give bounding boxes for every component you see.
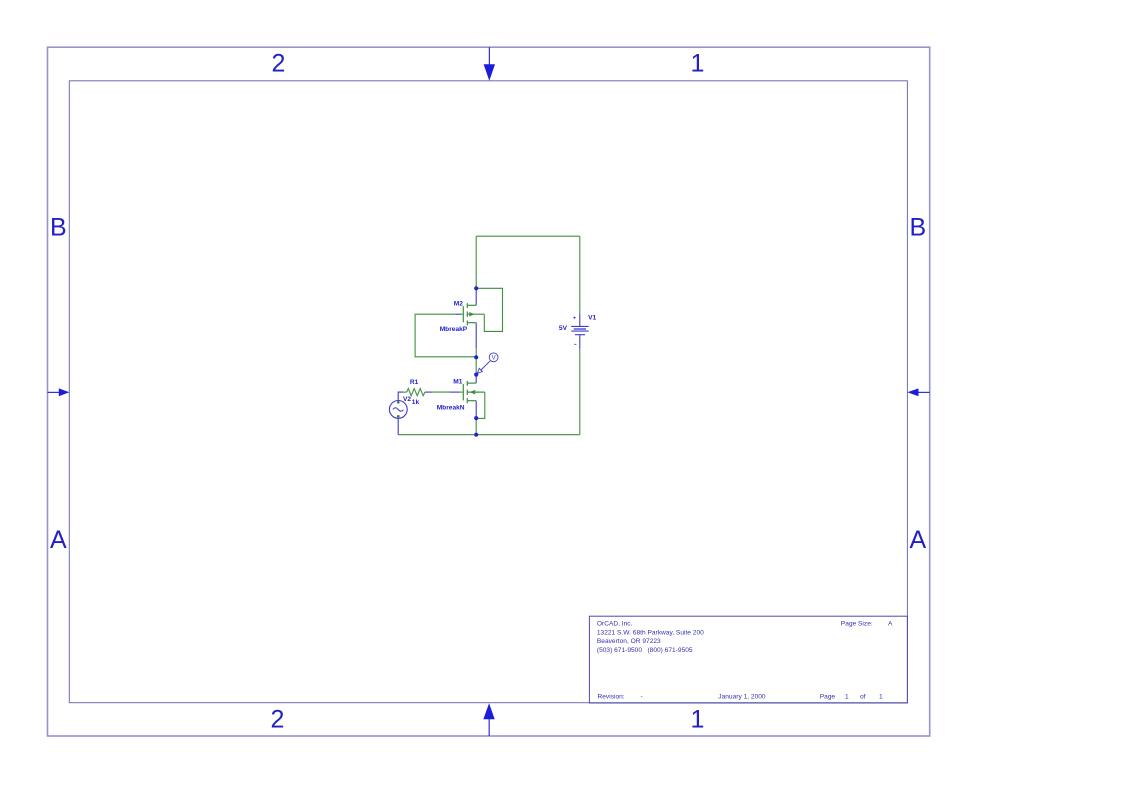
svg-text:1: 1 (691, 705, 705, 733)
svg-text:V: V (492, 356, 496, 362)
svg-text:MbreakN: MbreakN (437, 405, 465, 412)
svg-text:1: 1 (879, 694, 883, 701)
svg-text:Page Size:: Page Size: (841, 621, 873, 628)
svg-text:M1: M1 (453, 378, 462, 385)
svg-text:MbreakP: MbreakP (440, 326, 468, 333)
svg-text:1: 1 (845, 694, 849, 701)
svg-text:2: 2 (271, 705, 285, 733)
svg-text:A: A (909, 526, 926, 554)
svg-text:Beaverton, OR 97223: Beaverton, OR 97223 (597, 638, 661, 645)
svg-text:January 1, 2000: January 1, 2000 (718, 694, 766, 701)
svg-text:R1: R1 (410, 379, 419, 386)
svg-text:(503) 671-9500 (800) 671-950: (503) 671-9500 (800) 671-9505 (597, 647, 693, 654)
svg-text:OrCAD, Inc.: OrCAD, Inc. (597, 621, 633, 628)
svg-text:V1: V1 (588, 314, 596, 321)
svg-text:1k: 1k (412, 399, 420, 406)
svg-text:5V: 5V (559, 325, 568, 332)
svg-text:13221 S.W. 68th Parkway, Suite: 13221 S.W. 68th Parkway, Suite 200 (597, 629, 704, 636)
svg-text:B: B (50, 214, 67, 242)
svg-text:-: - (641, 694, 643, 701)
svg-text:M2: M2 (454, 301, 463, 308)
svg-text:A: A (888, 621, 893, 628)
svg-text:B: B (909, 214, 926, 242)
svg-text:Page: Page (820, 694, 836, 701)
svg-text:V2: V2 (403, 396, 411, 403)
svg-text:Revision:: Revision: (598, 694, 625, 701)
svg-text:A: A (50, 526, 67, 554)
svg-text:1: 1 (691, 50, 705, 78)
svg-text:of: of (860, 694, 866, 701)
svg-text:2: 2 (272, 50, 286, 78)
